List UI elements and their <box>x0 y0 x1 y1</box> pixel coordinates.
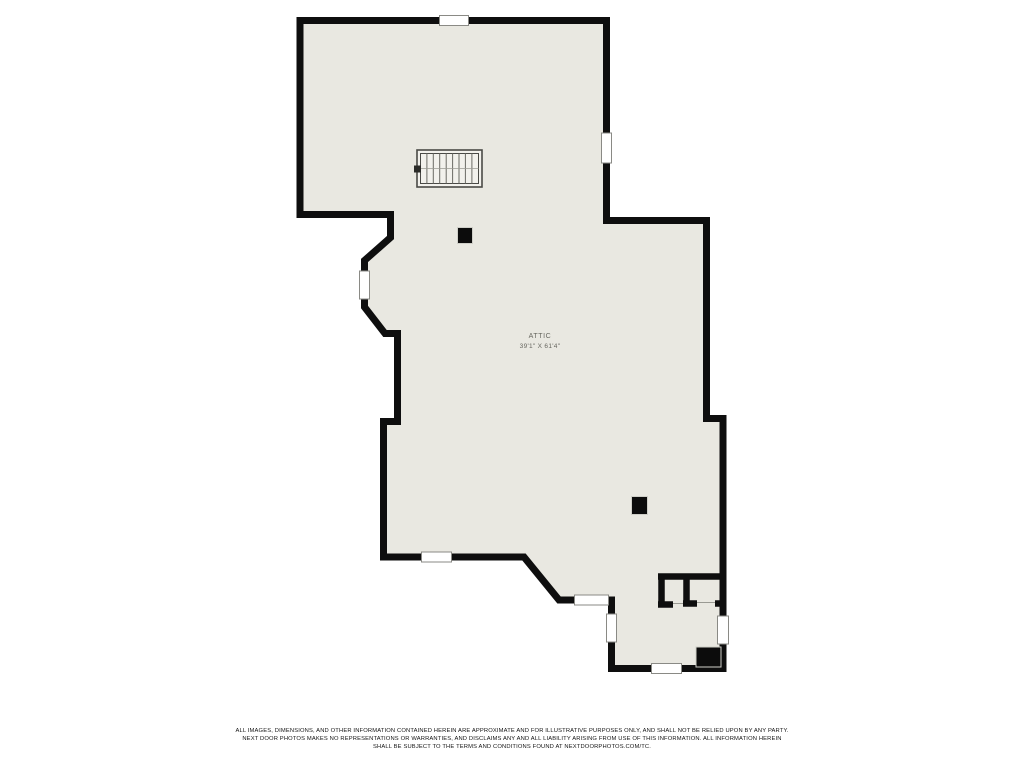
window-lower-right <box>718 616 729 644</box>
staircase <box>414 150 482 187</box>
window-bottom <box>652 664 682 674</box>
room-label: ATTIC 39'1" X 61'4" <box>440 332 640 352</box>
window-bay-left <box>360 271 370 299</box>
chimney-lower <box>632 497 648 515</box>
window-lower-step <box>575 595 609 605</box>
room-name: ATTIC <box>440 332 640 342</box>
window-top <box>440 16 469 26</box>
room-dimensions: 39'1" X 61'4" <box>440 342 640 352</box>
disclaimer: ALL IMAGES, DIMENSIONS, AND OTHER INFORM… <box>0 727 1024 752</box>
window-bottom-mid <box>422 552 452 562</box>
floor-plan <box>0 0 1024 768</box>
disclaimer-line-3: SHALL BE SUBJECT TO THE TERMS AND CONDIT… <box>0 743 1024 751</box>
chimney-corner <box>696 647 721 667</box>
disclaimer-line-2: NEXT DOOR PHOTOS MAKES NO REPRESENTATION… <box>0 735 1024 743</box>
chimney-upper <box>458 228 473 244</box>
stair-direction-marker <box>414 166 421 173</box>
window-lower-left <box>607 614 617 642</box>
disclaimer-line-1: ALL IMAGES, DIMENSIONS, AND OTHER INFORM… <box>0 727 1024 735</box>
window-upper-right <box>602 133 612 163</box>
